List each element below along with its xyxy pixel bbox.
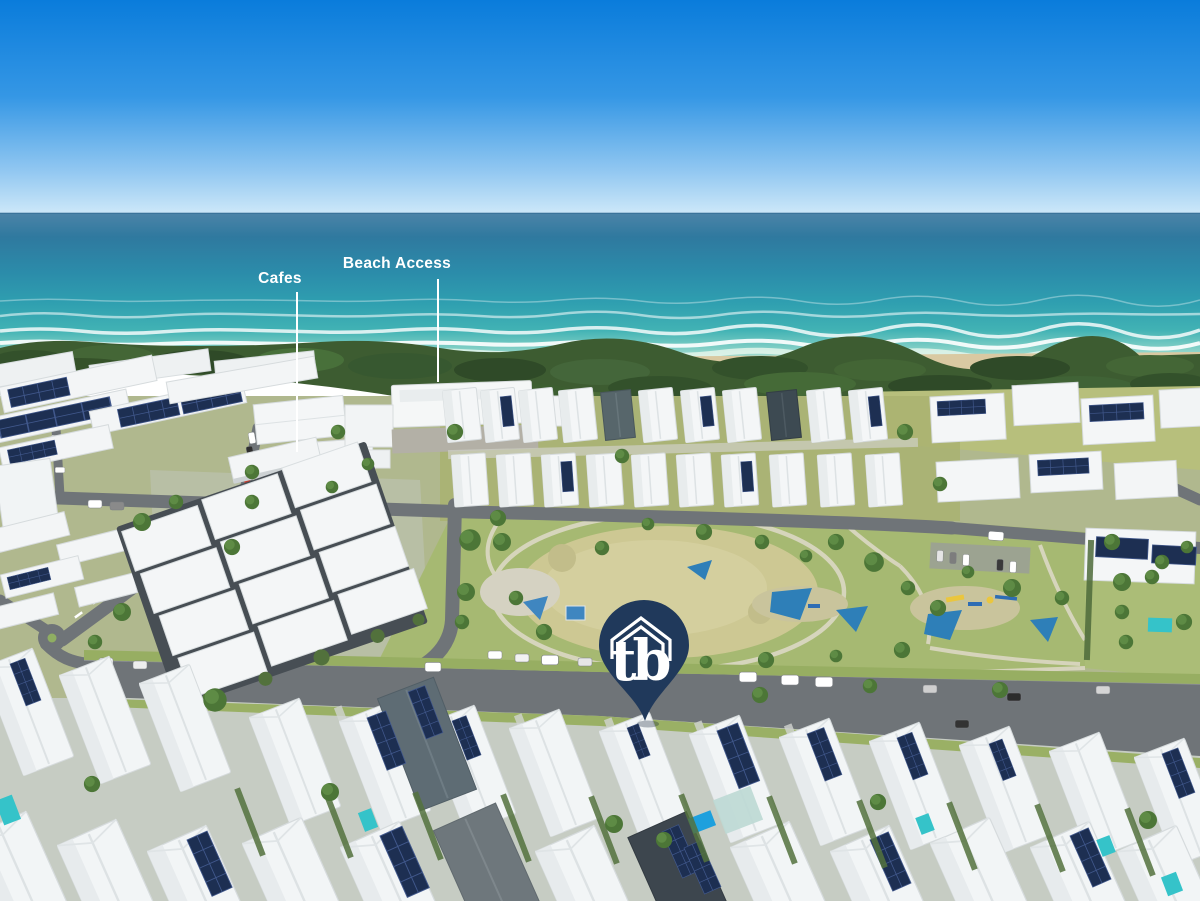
house: [865, 453, 903, 507]
tree: [870, 794, 886, 810]
car: [578, 658, 592, 666]
tree: [447, 424, 463, 440]
car: [988, 531, 1004, 541]
tree: [800, 550, 813, 563]
sky: [0, 0, 1200, 215]
tree: [758, 652, 774, 668]
tree: [897, 424, 913, 440]
tree: [1145, 570, 1159, 584]
car: [488, 651, 502, 659]
car: [815, 677, 833, 687]
beach-access-label: Beach Access: [343, 255, 451, 272]
car: [963, 554, 970, 565]
tree: [901, 581, 915, 595]
house: [769, 453, 807, 507]
tree: [894, 642, 910, 658]
tree: [864, 552, 884, 572]
house: [496, 453, 534, 507]
house: [601, 390, 636, 441]
tree: [700, 656, 713, 669]
tree: [455, 615, 469, 629]
car: [739, 672, 757, 682]
tree: [245, 465, 259, 479]
house: [558, 387, 597, 442]
house: [676, 453, 714, 507]
house: [631, 453, 669, 507]
gazebo: [566, 606, 585, 620]
house: [817, 453, 855, 507]
tree: [88, 635, 102, 649]
car: [950, 552, 957, 563]
car: [923, 685, 937, 693]
car: [937, 550, 944, 561]
tree: [863, 679, 877, 693]
tree: [962, 566, 975, 579]
house: [638, 387, 677, 442]
house: [518, 387, 557, 442]
house: [680, 387, 719, 442]
house: [480, 387, 519, 442]
tree: [457, 583, 475, 601]
tree: [1055, 591, 1069, 605]
tree: [1003, 579, 1021, 597]
car: [997, 559, 1004, 570]
tree: [696, 524, 712, 540]
tree: [84, 776, 100, 792]
tree: [203, 688, 226, 711]
car: [88, 500, 102, 508]
car: [425, 662, 441, 671]
tree: [1119, 635, 1133, 649]
tree: [169, 495, 183, 509]
tree: [1155, 555, 1169, 569]
tree: [133, 513, 151, 531]
tree: [1139, 811, 1157, 829]
house: [767, 390, 802, 441]
tree: [752, 687, 768, 703]
car: [515, 654, 529, 662]
tree: [490, 510, 506, 526]
house: [541, 453, 579, 507]
tree: [1104, 534, 1120, 550]
tree: [1115, 605, 1129, 619]
tree: [933, 477, 947, 491]
car: [55, 467, 65, 473]
tree: [224, 539, 240, 555]
car: [110, 502, 124, 510]
tree: [642, 518, 655, 531]
tree: [1181, 541, 1194, 554]
house: [722, 387, 761, 442]
tree: [245, 495, 259, 509]
tree: [493, 533, 511, 551]
car: [1007, 693, 1021, 701]
car: [133, 661, 147, 669]
tree: [828, 534, 844, 550]
tree: [509, 591, 523, 605]
horizon-line: [0, 213, 1200, 215]
tree: [595, 541, 609, 555]
aerial-photo: Cafes Beach Access tb: [0, 0, 1200, 901]
tree: [459, 529, 481, 551]
car: [1096, 686, 1110, 694]
tree: [1176, 614, 1192, 630]
car: [781, 675, 799, 685]
tree: [615, 449, 629, 463]
tree: [605, 815, 623, 833]
tree: [536, 624, 552, 640]
pool: [1148, 618, 1172, 633]
car: [542, 655, 559, 665]
tree: [1113, 573, 1131, 591]
tree: [656, 832, 672, 848]
tree: [362, 458, 375, 471]
house: [848, 387, 887, 442]
house: [806, 387, 845, 442]
tree: [113, 603, 131, 621]
car: [955, 720, 969, 728]
tree: [331, 425, 345, 439]
car: [1010, 561, 1017, 572]
pin-monogram: tb: [610, 628, 669, 694]
tree: [326, 481, 339, 494]
tree: [321, 783, 339, 801]
tree: [755, 535, 769, 549]
tree: [930, 600, 946, 616]
house: [451, 453, 489, 507]
house: [721, 453, 759, 507]
tree: [830, 650, 843, 663]
tree: [992, 682, 1008, 698]
cafes-label: Cafes: [258, 270, 302, 287]
